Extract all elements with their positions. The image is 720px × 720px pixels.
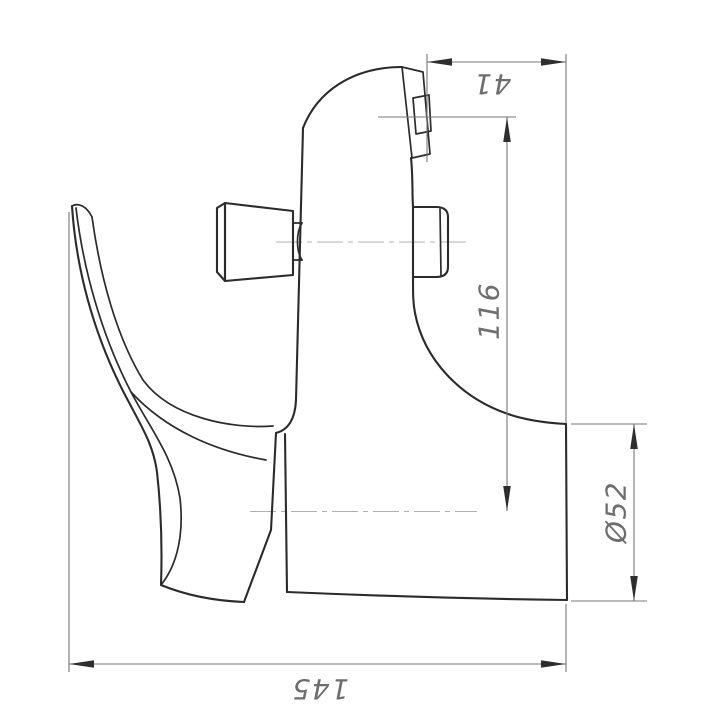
top-cartridge-outline: [402, 67, 430, 158]
arrow-up-icon: [503, 117, 511, 142]
technical-drawing-canvas: 41 116 Ø52 145: [0, 0, 720, 720]
dim-label-145: 145: [291, 673, 349, 706]
arrow-left-icon: [69, 660, 94, 668]
dimension-116: 116: [378, 117, 516, 511]
dim-label-116: 116: [473, 282, 506, 340]
faucet-body-outline: [276, 67, 567, 600]
left-knob-face: [217, 203, 225, 281]
right-knob-chamfer-line: [440, 209, 441, 275]
arrow-down-icon: [630, 576, 638, 601]
arrow-right-icon: [541, 58, 566, 66]
dim-label-diameter-52: Ø52: [600, 481, 633, 544]
dim-label-41: 41: [473, 68, 512, 101]
arrow-right-icon: [541, 660, 566, 668]
arrow-left-icon: [427, 58, 452, 66]
arrow-up-icon: [630, 424, 638, 449]
arrow-down-icon: [503, 486, 511, 511]
faucet-technical-drawing: 41 116 Ø52 145: [0, 0, 720, 720]
faucet-spout-outline: [72, 205, 276, 602]
dimension-diameter-52: Ø52: [571, 424, 647, 601]
